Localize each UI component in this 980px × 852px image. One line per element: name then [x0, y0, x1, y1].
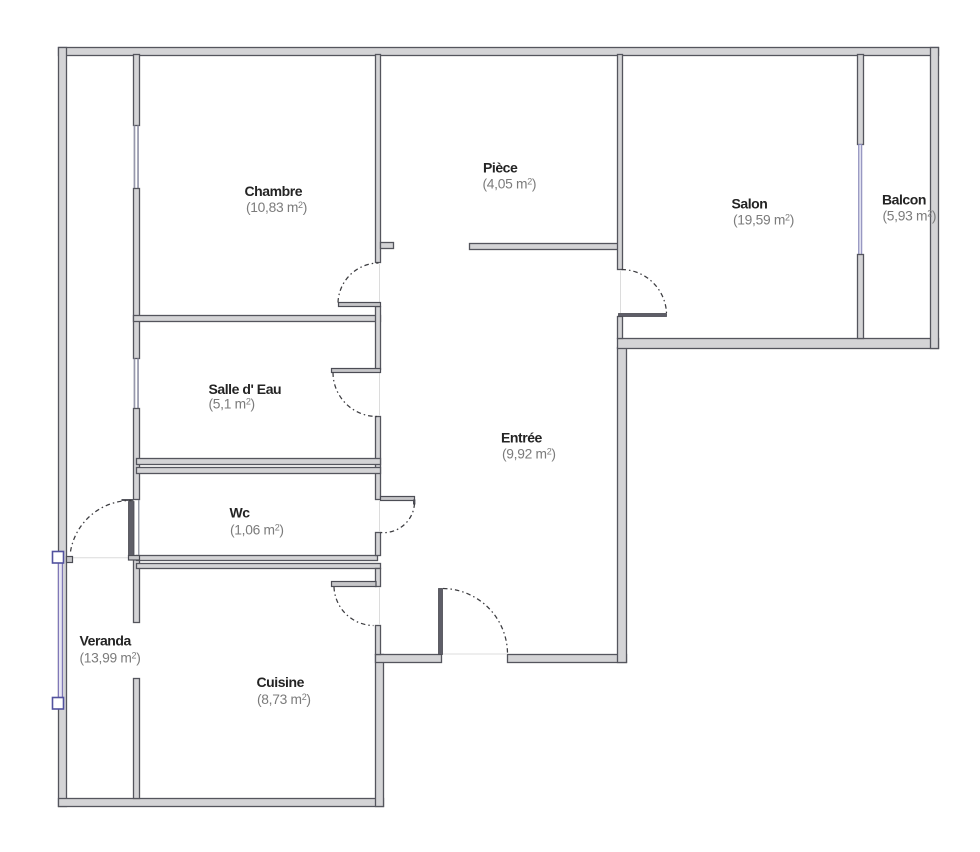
- svg-text:(19,59 m2): (19,59 m2): [733, 213, 794, 228]
- svg-text:Veranda: Veranda: [80, 633, 132, 649]
- svg-text:Wc: Wc: [230, 505, 251, 521]
- svg-text:(13,99 m2): (13,99 m2): [80, 651, 141, 666]
- svg-text:(10,83 m2): (10,83 m2): [246, 200, 307, 215]
- svg-text:Salle d' Eau: Salle d' Eau: [209, 381, 282, 397]
- svg-text:Balcon: Balcon: [882, 192, 926, 208]
- svg-text:Salon: Salon: [732, 196, 768, 212]
- svg-text:Cuisine: Cuisine: [257, 674, 305, 690]
- svg-text:Entrée: Entrée: [501, 430, 543, 446]
- svg-text:Chambre: Chambre: [245, 183, 303, 199]
- svg-text:Pièce: Pièce: [483, 160, 518, 176]
